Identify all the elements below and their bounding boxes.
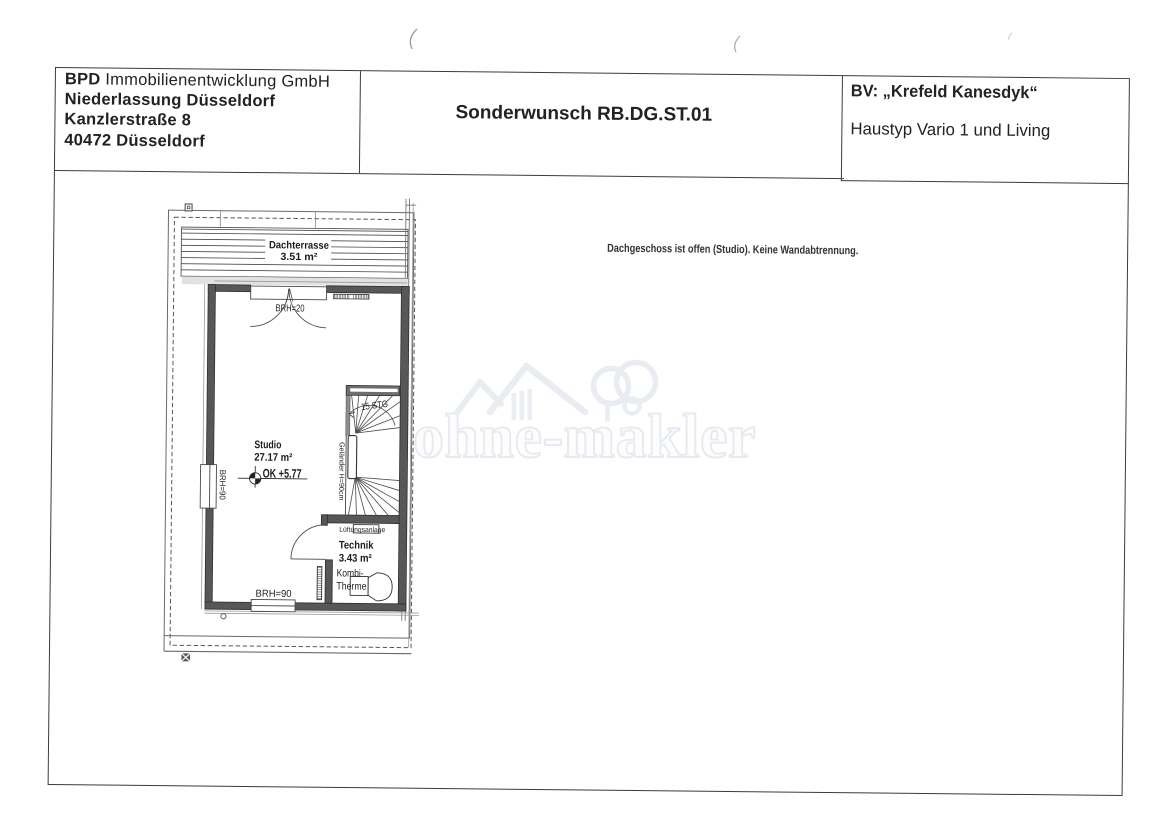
- svg-text:Technik: Technik: [339, 539, 374, 551]
- svg-text:OK +5.77: OK +5.77: [263, 466, 302, 480]
- svg-text:3.51 m²: 3.51 m²: [280, 251, 318, 263]
- svg-text:BRH=90: BRH=90: [256, 589, 293, 600]
- svg-text:3.43 m²: 3.43 m²: [339, 552, 372, 564]
- svg-text:BRH=90: BRH=90: [218, 470, 228, 500]
- svg-text:Kombi-: Kombi-: [337, 567, 365, 579]
- svg-text:BRH=20: BRH=20: [275, 303, 304, 314]
- svg-text:Therme: Therme: [336, 580, 366, 592]
- svg-text:27.17 m²: 27.17 m²: [254, 452, 292, 464]
- svg-text:Studio: Studio: [254, 439, 281, 451]
- svg-text:Geländer H=90cm: Geländer H=90cm: [337, 442, 347, 501]
- svg-text:15 STG: 15 STG: [360, 399, 388, 413]
- svg-text:Dachterrasse: Dachterrasse: [269, 239, 329, 252]
- svg-text:Lüftungsanlage: Lüftungsanlage: [339, 525, 385, 534]
